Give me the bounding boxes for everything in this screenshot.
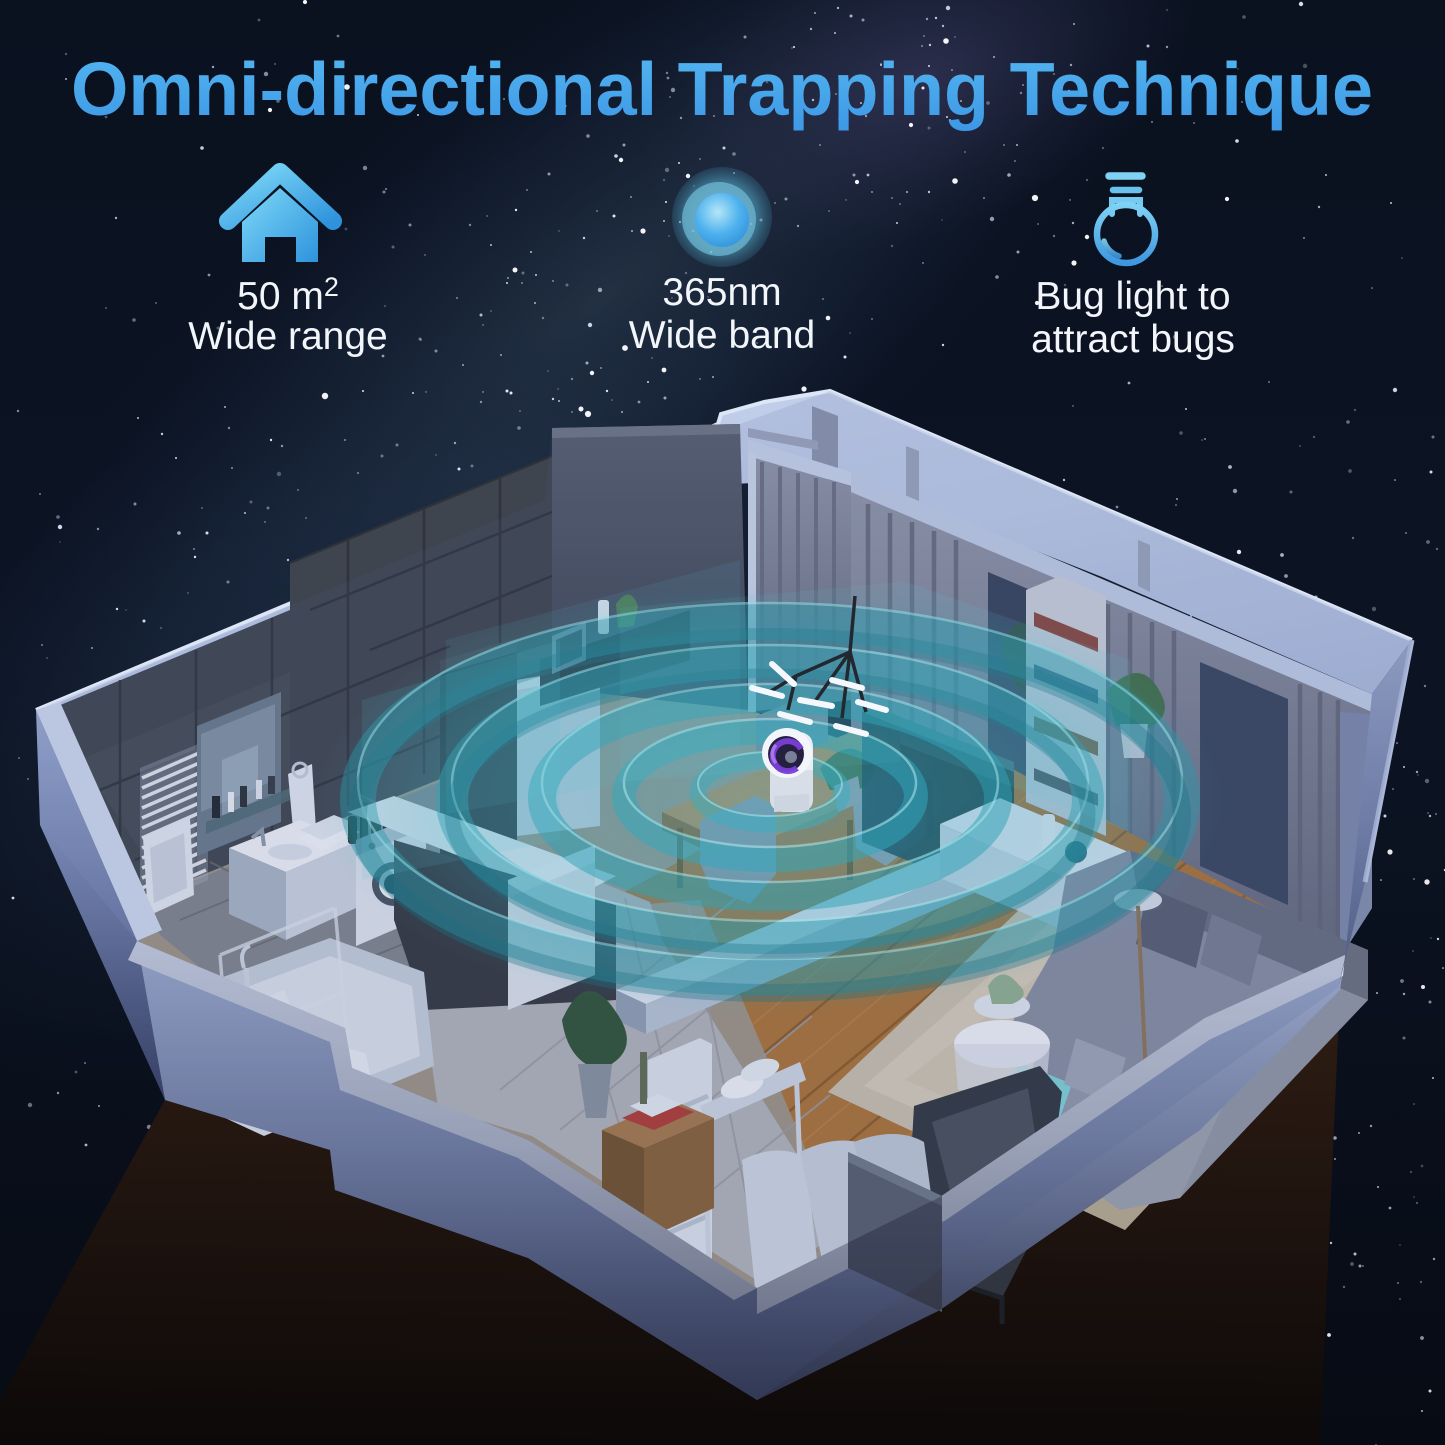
- svg-text:50 m2: 50 m2: [237, 272, 339, 318]
- svg-text:Wide band: Wide band: [629, 314, 815, 357]
- svg-text:365nm: 365nm: [662, 271, 781, 314]
- svg-text:Bug light to: Bug light to: [1035, 275, 1230, 318]
- svg-text:attract bugs: attract bugs: [1031, 318, 1235, 361]
- svg-text:Omni-directional Trapping Tech: Omni-directional Trapping Technique: [71, 47, 1373, 131]
- svg-text:Wide range: Wide range: [188, 315, 387, 358]
